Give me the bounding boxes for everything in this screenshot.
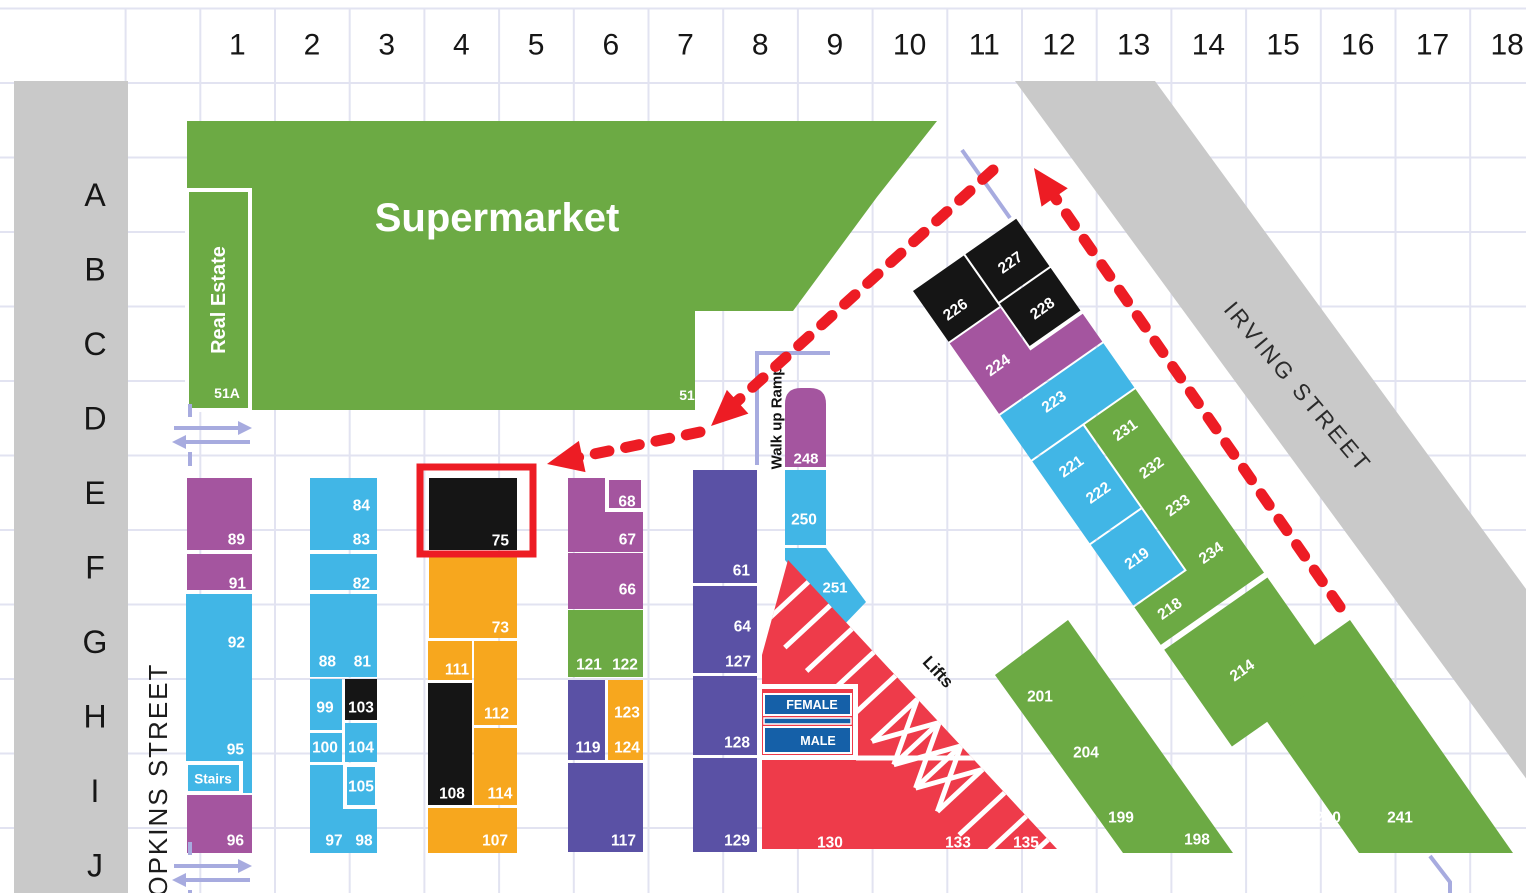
stall-number: 210 <box>1315 810 1341 827</box>
grid-row-label: C <box>83 326 106 362</box>
stall-204: 204 <box>1073 745 1099 762</box>
stall-stairs: Stairs <box>186 763 241 793</box>
stall-number: 68 <box>618 494 636 511</box>
lifts-label: Lifts <box>919 652 957 691</box>
grid-column-label: 13 <box>1117 29 1150 62</box>
stall-number: 129 <box>724 833 750 850</box>
market-map-svg: HOPKINS STREETIRVING STREET1234567891011… <box>0 0 1526 893</box>
stall-250: 250 <box>785 470 826 545</box>
stall-number: 128 <box>724 735 750 752</box>
walk-up-ramp-label: Walk up Ramp <box>769 367 786 470</box>
grid-column-label: 15 <box>1266 29 1299 62</box>
stall-number: 198 <box>1184 832 1210 849</box>
stall-68: 68 <box>607 478 643 511</box>
grid-column-label: 11 <box>969 29 1000 62</box>
stall-number: 250 <box>791 512 817 529</box>
grid-row-label: D <box>83 401 106 437</box>
grid-column-label: 9 <box>827 29 844 62</box>
stall-number: 98 <box>355 833 373 850</box>
grid-row-label: G <box>83 624 108 660</box>
stall-104: 104 <box>345 723 377 762</box>
stall-198: 198 <box>1184 832 1210 849</box>
stall-number: 108 <box>439 786 465 803</box>
grid-column-label: 7 <box>677 29 694 62</box>
grid-column-label: 3 <box>378 29 395 62</box>
stall-number: 104 <box>348 740 374 757</box>
stall-number: 73 <box>492 620 510 637</box>
stall-number: 99 <box>316 700 334 717</box>
stall-103: 103 <box>345 679 377 720</box>
stall-127: 127 <box>725 654 751 671</box>
grid-column-label: 16 <box>1341 29 1374 62</box>
stall-number: 127 <box>725 654 751 671</box>
unit-51-label: 51 <box>679 387 695 403</box>
grid-row-label: A <box>84 177 106 213</box>
stall-number: 121 <box>576 657 602 674</box>
stall-number: 67 <box>619 532 636 549</box>
stall-92: 92 <box>186 594 252 763</box>
stall-number: 75 <box>492 533 510 550</box>
stall-number: 66 <box>619 582 637 599</box>
stall-number: 97 <box>325 833 342 850</box>
hopkins-street-band <box>14 81 128 893</box>
stall-number: 114 <box>487 786 512 803</box>
stall-number: 105 <box>348 779 374 796</box>
stall-248: 248 <box>785 388 826 468</box>
stall-95: 95 <box>227 742 245 759</box>
grid-column-label: 2 <box>304 29 321 62</box>
stall-number: 89 <box>228 532 246 549</box>
stall-82: 82 <box>310 554 377 593</box>
stall-number: 84 <box>353 498 371 515</box>
stall-number: 100 <box>312 740 338 757</box>
stall-number: Stairs <box>194 772 232 787</box>
grid-row-label: H <box>83 699 106 735</box>
stall-66: 66 <box>568 553 643 609</box>
stall-number: 96 <box>227 833 245 850</box>
grid-column-label: 10 <box>893 29 926 62</box>
stall-111: 111 <box>428 641 472 680</box>
stall-133: 133 <box>945 835 971 852</box>
stall-number: 119 <box>575 740 600 757</box>
stall-number: 251 <box>822 580 847 597</box>
stall-number: 81 <box>354 654 372 671</box>
stall-number: 199 <box>1108 810 1134 827</box>
stall-96: 96 <box>187 795 252 853</box>
real-estate-label: Real Estate <box>208 246 230 354</box>
stall-number: 103 <box>348 700 374 717</box>
grid-row-label: J <box>87 848 103 884</box>
female-label: FEMALE <box>786 698 837 712</box>
supermarket-area: SupermarketReal Estate51A51 <box>187 121 937 410</box>
stall-107: 107 <box>428 808 517 853</box>
grid-column-label: 6 <box>602 29 619 62</box>
male-label: MALE <box>800 734 835 748</box>
stall-119: 119 <box>568 680 605 760</box>
stall-number: 95 <box>227 742 245 759</box>
grid-column-label: 14 <box>1192 29 1225 62</box>
grid-row-label: E <box>84 475 105 511</box>
stall-number: 64 <box>734 619 752 636</box>
grid-row-label: B <box>84 252 105 288</box>
stall-98: 98 <box>355 833 373 850</box>
stall-99: 99 <box>310 679 342 730</box>
stall-number: 91 <box>229 576 247 593</box>
hopkins-street-label: HOPKINS STREET <box>143 663 173 893</box>
supermarket-label: Supermarket <box>375 196 620 240</box>
grid-column-label: 8 <box>752 29 769 62</box>
stall-number: 123 <box>614 705 640 722</box>
grid-column-label: 1 <box>229 29 246 62</box>
stall-61: 61 <box>693 470 757 583</box>
stall-89: 89 <box>187 478 252 550</box>
stall-number: 241 <box>1387 810 1413 827</box>
stall-124: 124 <box>614 740 640 757</box>
grid-row-label: I <box>91 773 100 809</box>
grid-column-label: 5 <box>528 29 545 62</box>
stall-number: 112 <box>484 706 509 723</box>
stall-number: 124 <box>614 740 640 757</box>
stall-105: 105 <box>345 765 377 807</box>
stall-81: 81 <box>354 654 372 671</box>
stall-number: 111 <box>445 662 470 679</box>
grid-row-label: F <box>85 550 105 586</box>
stall-number: 204 <box>1073 745 1099 762</box>
grid-column-label: 17 <box>1416 29 1449 62</box>
stall-73: 73 <box>429 555 517 638</box>
stall-number: 201 <box>1027 689 1053 706</box>
stall-199: 199 <box>1108 810 1134 827</box>
stall-number: 61 <box>733 563 751 580</box>
unit-51a-label: 51A <box>214 385 240 401</box>
grid-column-label: 18 <box>1491 29 1524 62</box>
stall-128: 128 <box>693 676 757 755</box>
stall-number: 133 <box>945 835 971 852</box>
stall-83: 83 <box>353 532 371 549</box>
stall-number: 88 <box>319 654 337 671</box>
grid-column-label: 12 <box>1042 29 1075 62</box>
stall-number: 122 <box>612 657 638 674</box>
stall-112: 112 <box>474 641 517 725</box>
stall-114: 114 <box>474 728 517 805</box>
stall-number: 92 <box>228 635 245 652</box>
stall-75: 75 <box>429 478 517 550</box>
stall-129: 129 <box>693 758 757 852</box>
toilets-block: FEMALEMALE <box>757 684 858 760</box>
grid-column-label: 4 <box>453 29 470 62</box>
stall-130: 130 <box>817 835 843 852</box>
stall-108: 108 <box>428 683 472 805</box>
stall-241: 241 <box>1387 810 1413 827</box>
stall-117: 117 <box>568 763 643 852</box>
stall-number: 117 <box>611 833 636 850</box>
stall-number: 248 <box>793 451 818 468</box>
stall-number: 82 <box>353 576 370 593</box>
stall-number: 130 <box>817 835 843 852</box>
stall-number: 83 <box>353 532 371 549</box>
market-floorplan: HOPKINS STREETIRVING STREET1234567891011… <box>0 0 1526 893</box>
stall-91: 91 <box>187 554 252 593</box>
stall-100: 100 <box>310 733 342 762</box>
stall-number: 107 <box>482 833 508 850</box>
stall-122: 122 <box>612 657 638 674</box>
